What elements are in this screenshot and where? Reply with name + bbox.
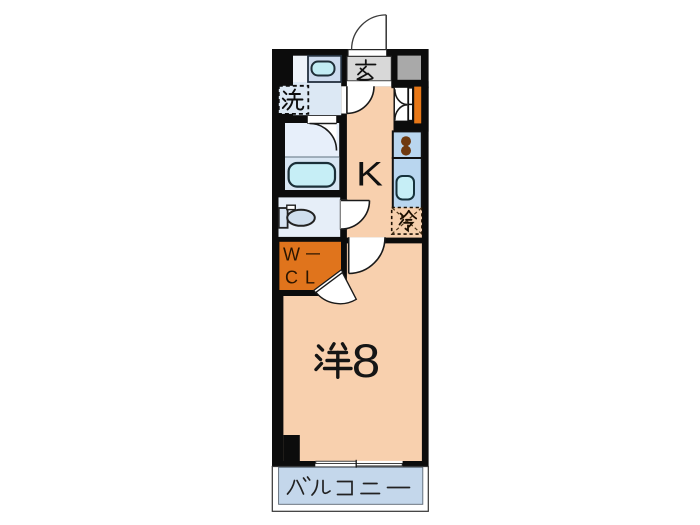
svg-text:C: C <box>285 268 298 288</box>
svg-text:K: K <box>356 154 383 192</box>
svg-text:W: W <box>283 245 300 265</box>
svg-text:—: — <box>306 243 320 263</box>
svg-text:8: 8 <box>352 335 381 388</box>
svg-text:L: L <box>305 268 315 288</box>
